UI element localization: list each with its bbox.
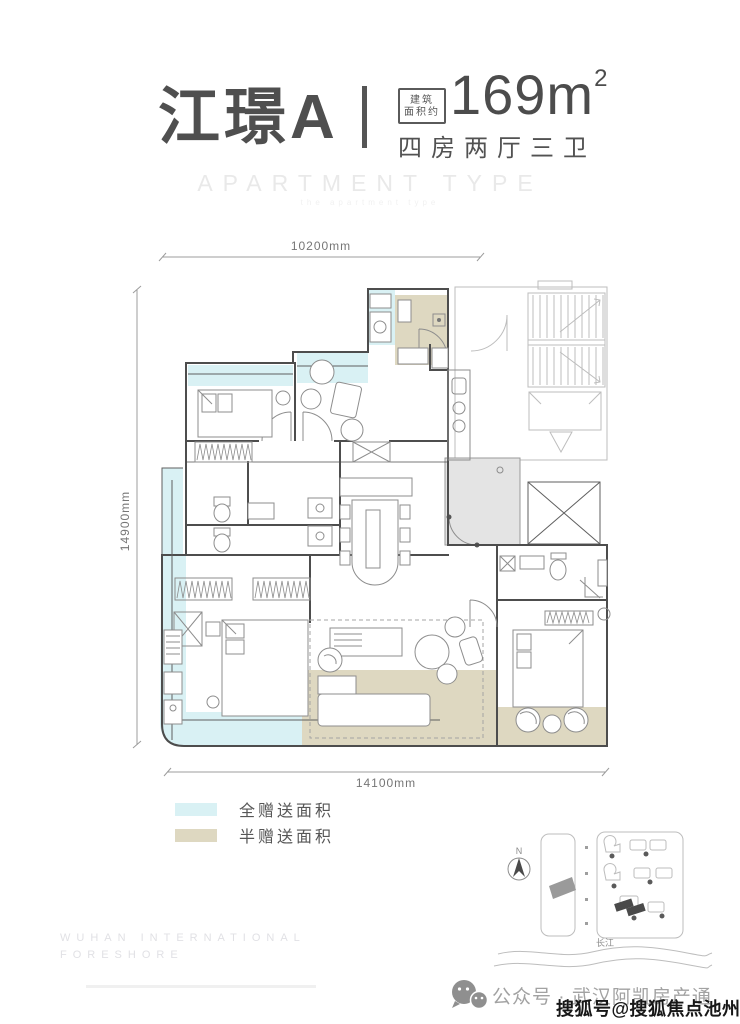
sohu-watermark: 搜狐号@搜狐焦点池州站 [556, 995, 740, 1021]
legend-label-half: 半赠送面积 [239, 823, 334, 847]
building-core [445, 281, 607, 548]
legend-item-full: 全赠送面积 [175, 800, 334, 818]
river-wave-1 [498, 947, 712, 956]
brand-line2: FORESHORE [60, 949, 184, 961]
dim-bottom-label: 14100mm [356, 776, 416, 790]
dimension-top: 10200mm [159, 239, 484, 261]
bathroom-right [500, 553, 607, 598]
legend-item-half: 半赠送面积 [175, 826, 334, 844]
brand-line1: WUHAN INTERNATIONAL [60, 932, 306, 944]
legend: 全赠送面积 半赠送面积 [175, 800, 334, 852]
shaft [528, 482, 600, 544]
fine-print-line [86, 985, 316, 988]
map-buildings [604, 836, 672, 912]
legend-swatch-half [175, 829, 217, 842]
staircase [528, 293, 605, 387]
dim-top-label: 10200mm [291, 239, 351, 253]
bedroom1-furniture [198, 390, 290, 437]
river-wave-2 [494, 959, 712, 968]
site-map: N [494, 832, 712, 968]
north-label: N [516, 846, 523, 856]
river-label: 长江 [596, 937, 614, 948]
dimension-left: 14900mm [118, 286, 141, 748]
dining-furniture [340, 478, 412, 585]
project-footprint [549, 877, 576, 899]
legend-label-full: 全赠送面积 [239, 797, 334, 821]
north-arrow-icon: N [508, 846, 530, 880]
wechat-icon [452, 980, 488, 1009]
legend-swatch-full [175, 803, 217, 816]
elevator-lobby [445, 458, 520, 548]
map-highlight-building [614, 895, 646, 919]
dimension-bottom: 14100mm [164, 768, 609, 790]
dim-left-label: 14900mm [118, 491, 132, 551]
floorplan-page: 江璟A 建筑 面积约 169m2 四房两厅三卫 APARTMENT TYPE t… [0, 0, 740, 1024]
floor-plan: 10200mm 14900mm 14100mm N [0, 0, 740, 1024]
map-dots [585, 846, 588, 925]
elevator [529, 392, 601, 452]
kitchen-fixtures [432, 348, 470, 460]
